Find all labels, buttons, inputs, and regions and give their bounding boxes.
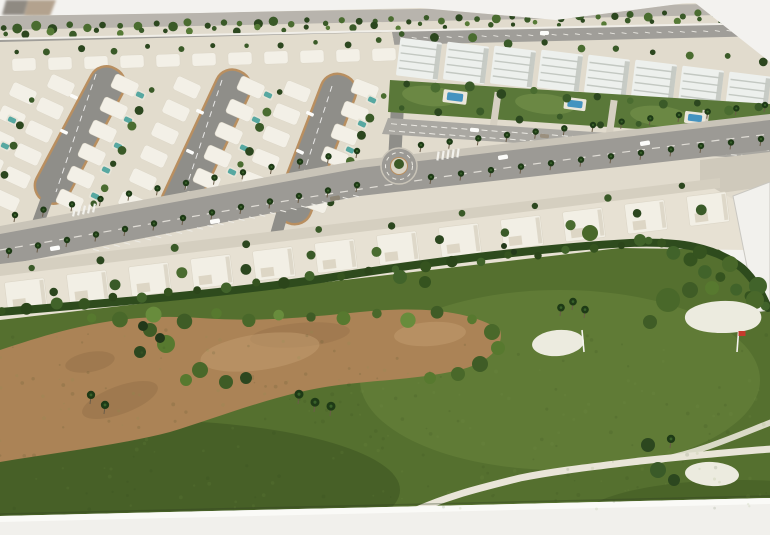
- architectural-model-photo: [0, 0, 770, 535]
- parking-car-dark: [540, 134, 549, 139]
- model-scene-canvas: [0, 0, 770, 535]
- roundabout-tree: [394, 159, 404, 169]
- background-pillar: [2, 0, 56, 16]
- scale-model: [0, 2, 770, 535]
